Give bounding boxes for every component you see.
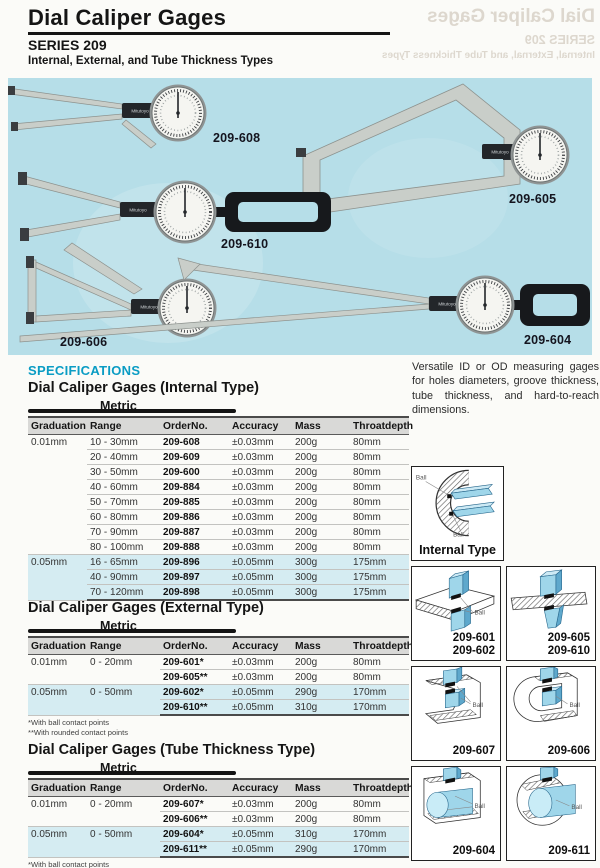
brand-label: Mitutoyo	[438, 301, 456, 306]
order-no-cell: 209-897	[160, 570, 229, 585]
column-header: Graduation	[28, 779, 87, 797]
diagram-209-611: Ball 209-611	[506, 766, 596, 861]
footnote: *With ball contact points	[28, 860, 409, 868]
throat-depth-cell: 170mm	[350, 827, 409, 842]
column-header: Mass	[292, 779, 350, 797]
accuracy-cell: ±0.05mm	[229, 685, 292, 700]
throat-depth-cell: 80mm	[350, 510, 409, 525]
order-no-cell: 209-886	[160, 510, 229, 525]
throat-depth-cell: 80mm	[350, 465, 409, 480]
graduation-cell: 0.01mm	[28, 797, 87, 827]
mass-cell: 310g	[292, 827, 350, 842]
footnote: **With rounded contact points	[28, 728, 409, 738]
product-label-209-605: 209-605	[509, 192, 556, 206]
order-no-cell: 209-609	[160, 450, 229, 465]
product-label-209-606: 209-606	[60, 335, 107, 349]
catalog-page: Dial Caliper Gages SERIES 209 Internal, …	[0, 0, 600, 868]
column-header: Mass	[292, 417, 350, 435]
mass-cell: 200g	[292, 670, 350, 685]
mass-cell: 290g	[292, 842, 350, 858]
diagram-caption-line: 209-604	[453, 845, 495, 858]
column-header: Range	[87, 637, 160, 655]
diagram-internal-type: Ball Ball Internal Type	[411, 466, 504, 561]
throat-depth-cell: 80mm	[350, 655, 409, 670]
column-header: Mass	[292, 637, 350, 655]
diagram-caption-line: 209-611	[548, 845, 590, 858]
series-label: SERIES 209	[28, 37, 107, 53]
column-header: OrderNo.	[160, 779, 229, 797]
throat-depth-cell: 80mm	[350, 435, 409, 450]
column-header: OrderNo.	[160, 417, 229, 435]
throat-depth-cell: 175mm	[350, 585, 409, 601]
throat-depth-cell: 175mm	[350, 570, 409, 585]
accuracy-cell: ±0.03mm	[229, 655, 292, 670]
ball-label: Ball	[474, 803, 485, 810]
graduation-cell: 0.05mm	[28, 555, 87, 601]
range-cell: 0 - 50mm	[87, 685, 160, 716]
ball-label: Ball	[416, 475, 427, 482]
subtitle: Internal, External, and Tube Thickness T…	[28, 55, 273, 67]
external-type-table: GraduationRangeOrderNo.AccuracyMassThroa…	[28, 636, 409, 716]
graduation-cell: 0.05mm	[28, 827, 87, 858]
accuracy-cell: ±0.05mm	[229, 570, 292, 585]
range-cell: 0 - 20mm	[87, 655, 160, 685]
diagram-caption: Internal Type	[412, 543, 503, 557]
internal-type-table: GraduationRangeOrderNo.AccuracyMassThroa…	[28, 416, 409, 601]
metric-tab-label: Metric	[100, 761, 137, 775]
throat-depth-cell: 80mm	[350, 540, 409, 555]
tube-thickness-table: GraduationRangeOrderNo.AccuracyMassThroa…	[28, 778, 409, 858]
diagram-209-601-602: Ball 209-601 209-602	[411, 566, 501, 661]
column-header: Accuracy	[229, 417, 292, 435]
page-title: Dial Caliper Gages	[28, 5, 226, 31]
product-label-209-604: 209-604	[524, 333, 571, 347]
external-plate-diagram: Ball	[412, 567, 500, 635]
table-row: 0.01mm0 - 20mm209-607*±0.03mm200g80mm	[28, 797, 409, 812]
throat-depth-cell: 170mm	[350, 685, 409, 700]
diagram-209-605-610: 209-605 209-610	[506, 566, 596, 661]
product-photo: MitutoyoMitutoyoMitutoyoMitutoyoMitutoyo…	[8, 78, 592, 355]
order-no-cell: 209-604*	[160, 827, 229, 842]
throat-depth-cell: 80mm	[350, 812, 409, 827]
throat-depth-cell: 80mm	[350, 525, 409, 540]
ball-label: Ball	[474, 610, 485, 617]
metric-tab: Metric	[28, 399, 238, 415]
ball-label: Ball	[571, 804, 582, 811]
mass-cell: 200g	[292, 510, 350, 525]
accuracy-cell: ±0.03mm	[229, 465, 292, 480]
graduation-cell: 0.01mm	[28, 655, 87, 685]
accuracy-cell: ±0.05mm	[229, 700, 292, 716]
internal-type-section: Dial Caliper Gages (Internal Type) Metri…	[28, 380, 409, 601]
range-cell: 60 - 80mm	[87, 510, 160, 525]
accuracy-cell: ±0.03mm	[229, 670, 292, 685]
graduation-cell: 0.01mm	[28, 435, 87, 555]
accuracy-cell: ±0.03mm	[229, 495, 292, 510]
mass-cell: 200g	[292, 495, 350, 510]
footnotes: *With ball contact points **With rounded…	[28, 860, 409, 868]
brand-label: Mitutoyo	[491, 149, 509, 154]
tube-ring-diagram: Ball	[507, 667, 595, 735]
column-header: Graduation	[28, 637, 87, 655]
specifications-heading: SPECIFICATIONS	[28, 363, 140, 378]
diagram-caption: 209-606	[548, 745, 590, 758]
throat-depth-cell: 175mm	[350, 555, 409, 570]
order-no-cell: 209-887	[160, 525, 229, 540]
ball-label: Ball	[473, 702, 484, 709]
diagram-caption-line: 209-605	[548, 632, 590, 645]
mass-cell: 200g	[292, 797, 350, 812]
brand-label: Mitutoyo	[129, 207, 147, 212]
table-row: 0.05mm0 - 50mm209-604*±0.05mm310g170mm	[28, 827, 409, 842]
order-no-cell: 209-888	[160, 540, 229, 555]
column-header: Throatdepth	[350, 637, 409, 655]
table-row: 0.05mm0 - 50mm209-602*±0.05mm290g170mm	[28, 685, 409, 700]
order-no-cell: 209-605**	[160, 670, 229, 685]
diagram-caption-line: 209-607	[453, 745, 495, 758]
ghost-title: Dial Caliper Gages	[295, 6, 595, 28]
throat-depth-cell: 80mm	[350, 797, 409, 812]
diagram-caption: 209-607	[453, 745, 495, 758]
diagram-209-604: Ball 209-604	[411, 766, 501, 861]
accuracy-cell: ±0.03mm	[229, 435, 292, 450]
accuracy-cell: ±0.05mm	[229, 842, 292, 858]
intro-paragraph: Versatile ID or OD measuring gages for h…	[412, 360, 599, 417]
accuracy-cell: ±0.05mm	[229, 585, 292, 601]
tube-bore-diagram: Ball	[412, 767, 500, 835]
external-type-section: Dial Caliper Gages (External Type) Metri…	[28, 600, 409, 738]
mass-cell: 200g	[292, 655, 350, 670]
mass-cell: 300g	[292, 585, 350, 601]
range-cell: 50 - 70mm	[87, 495, 160, 510]
column-header: Graduation	[28, 417, 87, 435]
tube-c-diagram: Ball	[412, 667, 500, 735]
diagram-caption: 209-611	[548, 845, 590, 858]
accuracy-cell: ±0.03mm	[229, 540, 292, 555]
diagram-caption: 209-604	[453, 845, 495, 858]
range-cell: 80 - 100mm	[87, 540, 160, 555]
ghost-subtitle: Internal, External, and Tube Thickness T…	[295, 50, 595, 61]
mass-cell: 200g	[292, 480, 350, 495]
mass-cell: 290g	[292, 685, 350, 700]
mass-cell: 200g	[292, 812, 350, 827]
mass-cell: 200g	[292, 435, 350, 450]
ball-label: Ball	[453, 531, 464, 538]
tube-thickness-title: Dial Caliper Gages (Tube Thickness Type)	[28, 742, 409, 758]
range-cell: 0 - 20mm	[87, 797, 160, 827]
order-no-cell: 209-896	[160, 555, 229, 570]
title-underline	[28, 32, 390, 35]
mass-cell: 200g	[292, 540, 350, 555]
order-no-cell: 209-898	[160, 585, 229, 601]
range-cell: 30 - 50mm	[87, 465, 160, 480]
accuracy-cell: ±0.03mm	[229, 797, 292, 812]
brand-label: Mitutoyo	[131, 108, 149, 113]
order-no-cell: 209-885	[160, 495, 229, 510]
column-header: Accuracy	[229, 637, 292, 655]
range-cell: 70 - 90mm	[87, 525, 160, 540]
mass-cell: 200g	[292, 450, 350, 465]
metric-tab-label: Metric	[100, 619, 137, 633]
order-no-cell: 209-884	[160, 480, 229, 495]
column-header: Range	[87, 779, 160, 797]
diagram-caption-line: 209-602	[453, 645, 495, 658]
product-label-209-608: 209-608	[213, 131, 260, 145]
diagram-caption-line: 209-601	[453, 632, 495, 645]
graduation-cell: 0.05mm	[28, 685, 87, 716]
order-no-cell: 209-606**	[160, 812, 229, 827]
throat-depth-cell: 170mm	[350, 700, 409, 716]
column-header: Accuracy	[229, 779, 292, 797]
throat-depth-cell: 80mm	[350, 495, 409, 510]
table-row: 0.05mm16 - 65mm209-896±0.05mm300g175mm	[28, 555, 409, 570]
internal-type-title: Dial Caliper Gages (Internal Type)	[28, 380, 409, 396]
accuracy-cell: ±0.03mm	[229, 525, 292, 540]
throat-depth-cell: 80mm	[350, 670, 409, 685]
product-label-209-610: 209-610	[221, 237, 268, 251]
mass-cell: 300g	[292, 555, 350, 570]
order-no-cell: 209-600	[160, 465, 229, 480]
throat-depth-cell: 80mm	[350, 450, 409, 465]
ghost-series: SERIES 209	[295, 33, 595, 47]
order-no-cell: 209-608	[160, 435, 229, 450]
external-bar-diagram	[507, 567, 595, 635]
column-header: Throatdepth	[350, 779, 409, 797]
range-cell: 16 - 65mm	[87, 555, 160, 570]
accuracy-cell: ±0.05mm	[229, 555, 292, 570]
order-no-cell: 209-602*	[160, 685, 229, 700]
throat-depth-cell: 80mm	[350, 480, 409, 495]
table-row: 0.01mm10 - 30mm209-608±0.03mm200g80mm	[28, 435, 409, 450]
diagram-caption: 209-601 209-602	[453, 632, 495, 658]
gage-illustrations: MitutoyoMitutoyoMitutoyoMitutoyoMitutoyo	[8, 78, 592, 355]
range-cell: 40 - 60mm	[87, 480, 160, 495]
accuracy-cell: ±0.05mm	[229, 827, 292, 842]
accuracy-cell: ±0.03mm	[229, 450, 292, 465]
tube-ring-bore-diagram: Ball	[507, 767, 595, 835]
brand-label: Mitutoyo	[140, 304, 158, 309]
order-no-cell: 209-610**	[160, 700, 229, 716]
internal-type-diagram: Ball Ball	[412, 467, 502, 539]
range-cell: 0 - 50mm	[87, 827, 160, 858]
diagram-209-606: Ball 209-606	[506, 666, 596, 761]
metric-tab: Metric	[28, 619, 238, 635]
tube-thickness-section: Dial Caliper Gages (Tube Thickness Type)…	[28, 742, 409, 868]
order-no-cell: 209-611**	[160, 842, 229, 858]
diagram-caption: 209-605 209-610	[548, 632, 590, 658]
gage-209-610: Mitutoyo	[18, 172, 331, 244]
footnote: *With ball contact points	[28, 718, 409, 728]
footnotes: *With ball contact points **With rounded…	[28, 718, 409, 738]
accuracy-cell: ±0.03mm	[229, 510, 292, 525]
column-header: Throatdepth	[350, 417, 409, 435]
throat-depth-cell: 170mm	[350, 842, 409, 858]
order-no-cell: 209-601*	[160, 655, 229, 670]
ball-label: Ball	[569, 702, 580, 709]
gage-209-608: Mitutoyo	[8, 85, 207, 149]
range-cell: 10 - 30mm	[87, 435, 160, 450]
diagram-209-607: Ball 209-607	[411, 666, 501, 761]
external-type-title: Dial Caliper Gages (External Type)	[28, 600, 409, 616]
column-header: Range	[87, 417, 160, 435]
table-row: 0.01mm0 - 20mm209-601*±0.03mm200g80mm	[28, 655, 409, 670]
mass-cell: 310g	[292, 700, 350, 716]
mass-cell: 200g	[292, 465, 350, 480]
mass-cell: 300g	[292, 570, 350, 585]
range-cell: 40 - 90mm	[87, 570, 160, 585]
accuracy-cell: ±0.03mm	[229, 812, 292, 827]
order-no-cell: 209-607*	[160, 797, 229, 812]
diagram-caption-line: 209-606	[548, 745, 590, 758]
metric-tab-label: Metric	[100, 399, 137, 413]
metric-tab: Metric	[28, 761, 238, 777]
mass-cell: 200g	[292, 525, 350, 540]
range-cell: 20 - 40mm	[87, 450, 160, 465]
column-header: OrderNo.	[160, 637, 229, 655]
accuracy-cell: ±0.03mm	[229, 480, 292, 495]
diagram-caption-line: 209-610	[548, 645, 590, 658]
range-cell: 70 - 120mm	[87, 585, 160, 601]
